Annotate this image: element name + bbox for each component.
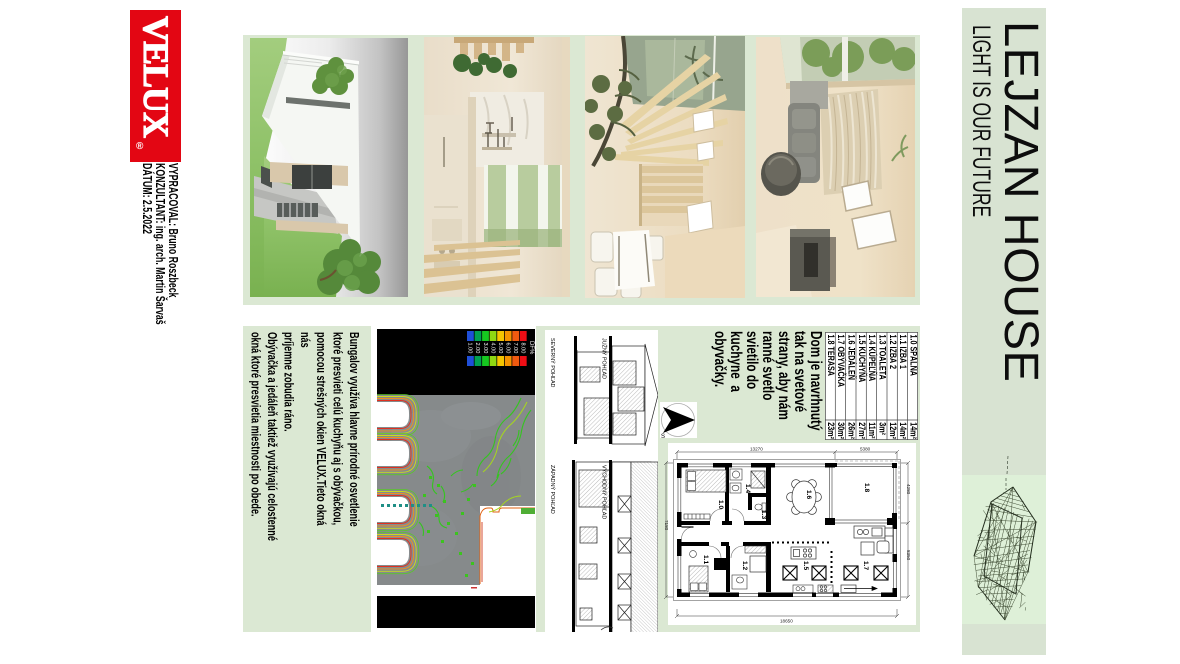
- svg-text:23m²: 23m²: [826, 422, 836, 439]
- svg-text:1.3: 1.3: [760, 510, 767, 519]
- svg-text:8350: 8350: [906, 550, 911, 561]
- svg-text:27m²: 27m²: [857, 422, 867, 439]
- svg-text:1.5 KUCHYŇA: 1.5 KUCHYŇA: [857, 335, 869, 383]
- svg-text:3.00: 3.00: [482, 343, 488, 354]
- svg-text:18650: 18650: [780, 619, 793, 624]
- svg-text:1.5: 1.5: [802, 561, 809, 570]
- svg-text:DF%: DF%: [528, 341, 534, 355]
- svg-text:3m²: 3m²: [877, 422, 887, 435]
- svg-text:14m²: 14m²: [898, 422, 908, 439]
- svg-text:1.00: 1.00: [467, 343, 473, 354]
- svg-text:VÝCHODNÝ POHĽAD: VÝCHODNÝ POHĽAD: [601, 465, 608, 519]
- svg-text:26m²: 26m²: [846, 422, 856, 439]
- svg-text:1.3 TOALETA: 1.3 TOALETA: [877, 335, 887, 380]
- svg-text:12m²: 12m²: [888, 422, 898, 439]
- svg-text:1.7 OBÝVAČKA: 1.7 OBÝVAČKA: [836, 335, 848, 388]
- svg-text:7.00: 7.00: [512, 343, 518, 354]
- svg-text:4.00: 4.00: [489, 343, 495, 354]
- svg-text:1.1 IZBA 1: 1.1 IZBA 1: [898, 335, 908, 370]
- svg-text:1.7: 1.7: [862, 561, 869, 570]
- svg-text:5.00: 5.00: [497, 343, 503, 354]
- svg-text:1.0: 1.0: [717, 500, 724, 509]
- svg-text:11m²: 11m²: [867, 422, 877, 439]
- svg-text:ZÁPADNÝ POHĽAD: ZÁPADNÝ POHĽAD: [549, 465, 556, 514]
- svg-text:1.6: 1.6: [805, 490, 812, 499]
- svg-text:1.4: 1.4: [744, 484, 751, 493]
- svg-text:5380: 5380: [860, 447, 871, 452]
- svg-text:JUŽNÝ POHĽAD: JUŽNÝ POHĽAD: [601, 338, 609, 379]
- svg-text:1.1: 1.1: [702, 555, 709, 564]
- svg-text:1.8: 1.8: [863, 483, 870, 492]
- svg-text:14m²: 14m²: [908, 422, 918, 439]
- svg-text:1.2: 1.2: [741, 561, 748, 570]
- svg-text:1.6 JEDÁLEŇ: 1.6 JEDÁLEŇ: [846, 335, 858, 381]
- svg-text:SEVERNÝ POHĽAD: SEVERNÝ POHĽAD: [549, 338, 556, 388]
- svg-text:1.2 IZBA 2: 1.2 IZBA 2: [888, 335, 898, 370]
- svg-text:4280: 4280: [906, 484, 911, 495]
- svg-text:13270: 13270: [750, 447, 763, 452]
- svg-text:2.00: 2.00: [474, 343, 480, 354]
- svg-text:6.00: 6.00: [504, 343, 510, 354]
- svg-text:1.4 KÚPEĽŇA: 1.4 KÚPEĽŇA: [867, 335, 879, 382]
- svg-text:30m²: 30m²: [836, 422, 846, 439]
- svg-text:8.00: 8.00: [520, 343, 526, 354]
- svg-text:S: S: [661, 434, 665, 438]
- svg-text:1.0 SPÁLŇA: 1.0 SPÁLŇA: [908, 335, 918, 377]
- svg-text:7180: 7180: [664, 520, 669, 531]
- svg-text:1.8 TERASA: 1.8 TERASA: [826, 335, 836, 377]
